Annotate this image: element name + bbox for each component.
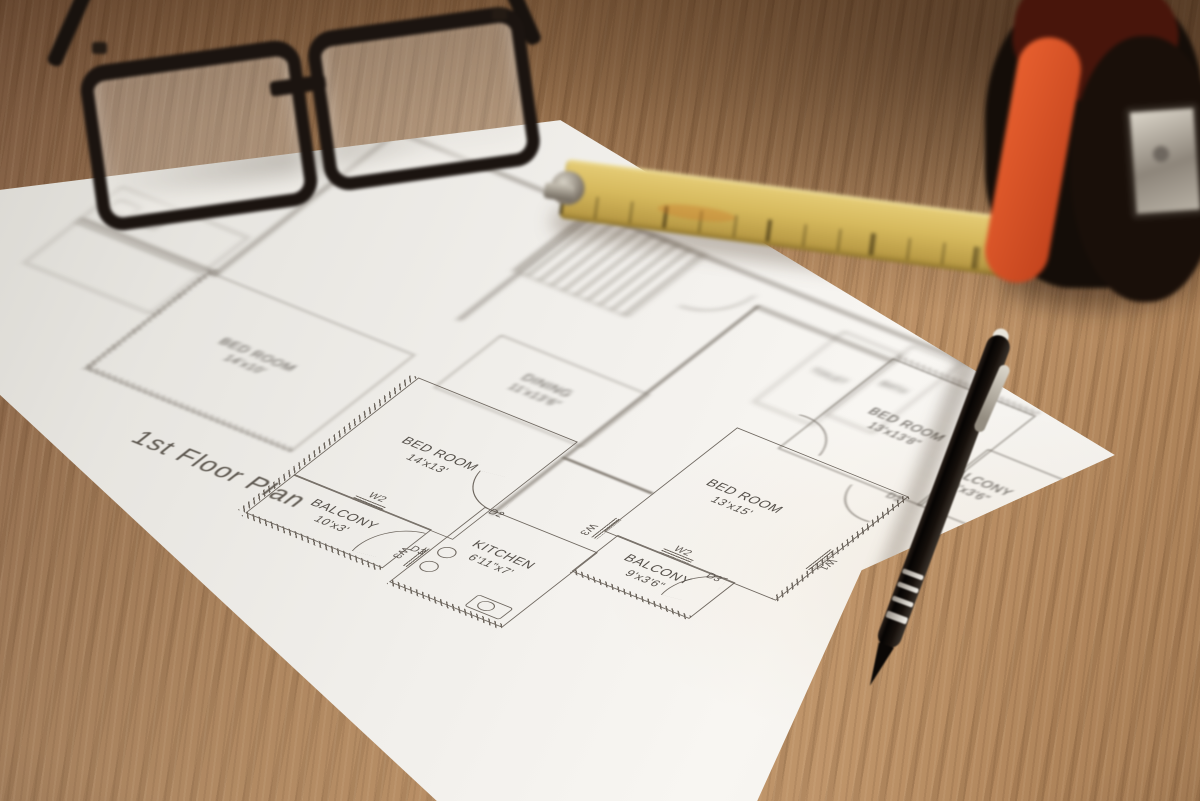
glasses-hinge — [92, 42, 107, 54]
glasses-temple-left — [46, 0, 105, 68]
photo-scene: BED ROOM 14'x10' DINING 11'x13'6" TOILET… — [0, 0, 1200, 801]
eyeglasses — [40, 0, 570, 215]
glasses-right-lens — [305, 4, 543, 194]
wall-segment — [561, 456, 653, 494]
tape-measure — [985, 0, 1200, 303]
glasses-left-lens — [77, 37, 320, 233]
glasses-hinge — [492, 8, 507, 20]
